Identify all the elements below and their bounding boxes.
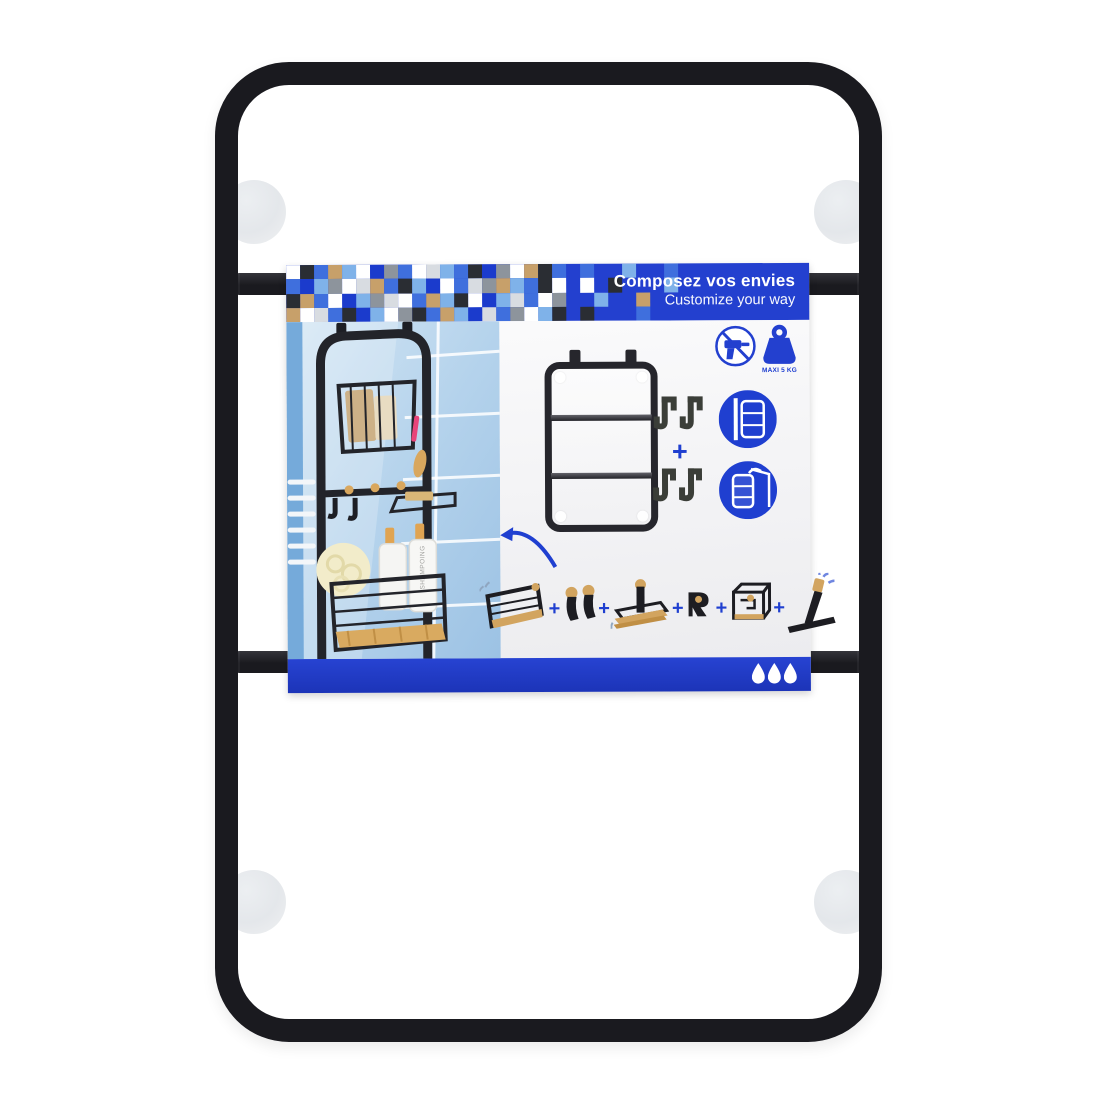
weight-limit-label: MAXI 5 KG [762, 367, 797, 374]
plus-sign: + [549, 597, 561, 620]
bottle-label: SHAMPOING [419, 545, 426, 589]
no-drill-icon [713, 324, 757, 368]
weight-icon [761, 324, 797, 366]
footer-strip [288, 657, 811, 693]
peg-hooks-icon [561, 583, 597, 627]
s-hooks-icon [653, 394, 707, 430]
squeegee-icon [786, 573, 838, 635]
stack-shelf-icon [611, 578, 671, 630]
plus-sign: + [653, 438, 707, 464]
package-main-panel: SHAMPOING [286, 320, 810, 659]
cube-basket-icon [728, 580, 772, 628]
banner-subtitle: Customize your way [614, 291, 795, 310]
rack-schematic [544, 362, 658, 532]
wall-mount-diagram [719, 390, 777, 448]
bathroom-photo: SHAMPOING [286, 321, 500, 659]
plus-sign: + [672, 597, 684, 620]
plus-sign: + [598, 597, 610, 620]
plus-sign: + [716, 597, 728, 620]
hanger-tab-icon [569, 350, 580, 365]
j-hooks-icon [653, 467, 707, 503]
water-drops-icon [752, 663, 797, 684]
over-door-diagram [719, 461, 777, 519]
loofah [316, 543, 370, 597]
single-hook-icon [685, 590, 715, 618]
packaging-sleeve: Composez vos envies Customize your way [286, 263, 811, 693]
banner-title: Composez vos envies [614, 270, 796, 292]
accessory-row: + + + [479, 572, 805, 637]
arrow-icon [497, 521, 561, 573]
wire-basket-icon [479, 576, 547, 634]
hanger-tab-icon [625, 350, 636, 365]
plus-sign: + [773, 596, 785, 619]
banner: Composez vos envies Customize your way [286, 263, 809, 322]
